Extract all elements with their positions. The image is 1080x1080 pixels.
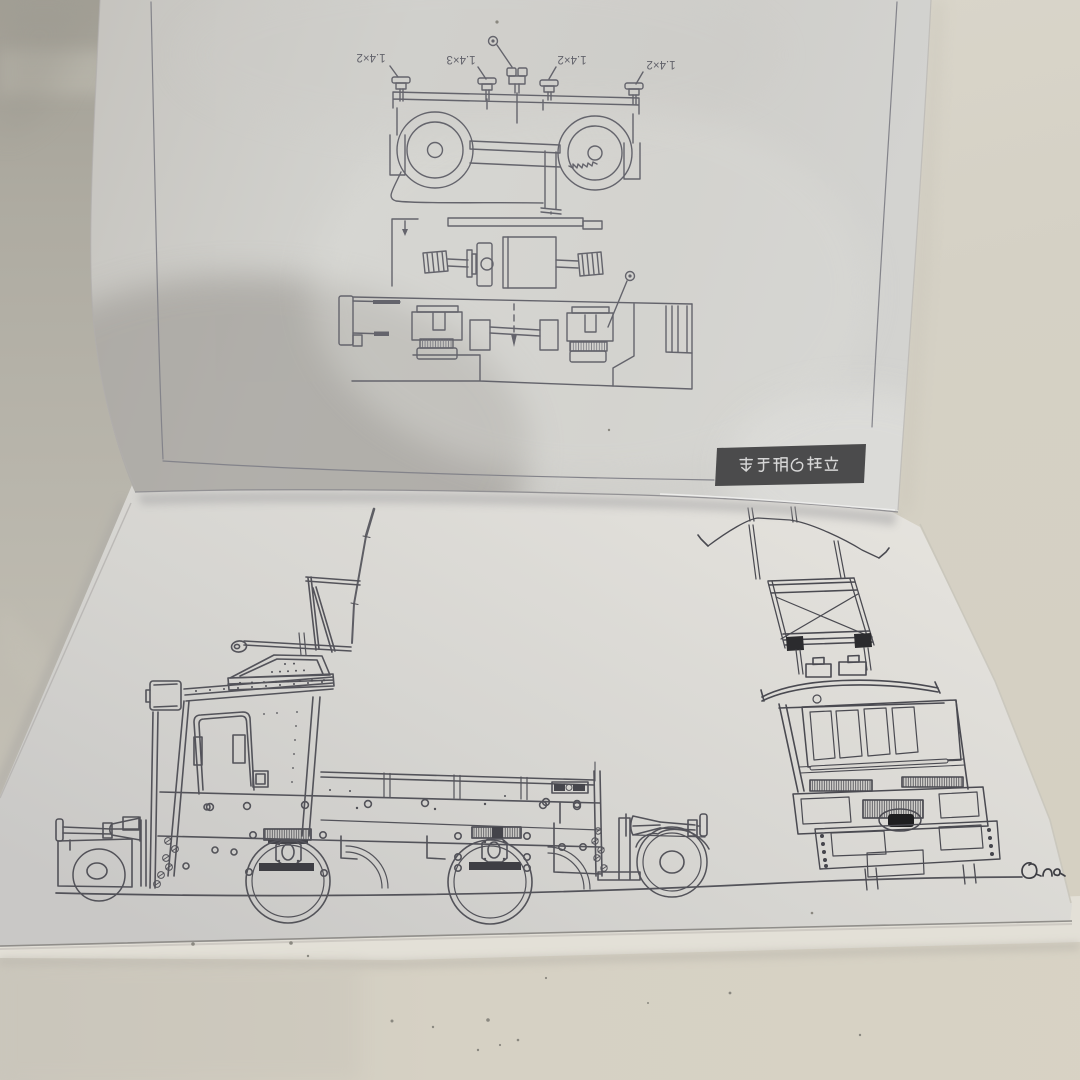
svg-text:1.4×2: 1.4×2 bbox=[646, 58, 675, 70]
svg-text:1.4×2: 1.4×2 bbox=[557, 53, 586, 65]
svg-text:1.4×3: 1.4×3 bbox=[446, 53, 475, 65]
svg-text:1.4×2: 1.4×2 bbox=[356, 51, 385, 63]
